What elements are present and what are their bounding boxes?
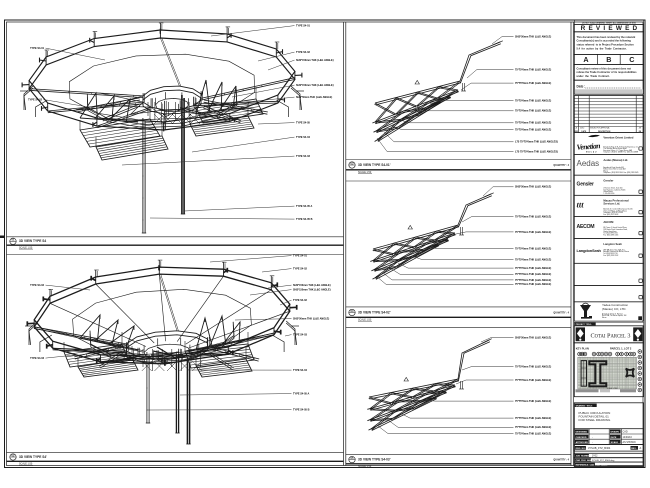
svg-text:Macau: Macau xyxy=(603,170,608,172)
svg-text:TYPE S4-05 B: TYPE S4-05 B xyxy=(293,409,310,412)
svg-text:75*75*6mm THK (L&G ANGLE): 75*75*6mm THK (L&G ANGLE) xyxy=(515,247,551,250)
svg-text:75*75*6mm THK (L&G ANGLE): 75*75*6mm THK (L&G ANGLE) xyxy=(515,129,551,132)
svg-text:TYPE S4-03: TYPE S4-03 xyxy=(30,357,45,360)
svg-text:This document has been reviwed: This document has been reviwed by the re… xyxy=(577,35,636,39)
svg-text:75*75*6mm THK (L&G ANGLE): 75*75*6mm THK (L&G ANGLE) xyxy=(515,68,551,71)
svg-text:Avenida da Praia Grande 665: Avenida da Praia Grande 665 xyxy=(603,166,623,169)
svg-text:75*75*6mm THK (L&G ANGLE): 75*75*6mm THK (L&G ANGLE) xyxy=(515,99,551,102)
svg-text:Tel: (853) 2833 1710: Tel: (853) 2833 1710 xyxy=(603,253,617,255)
svg-text:3D VIEW TYPE S4': 3D VIEW TYPE S4' xyxy=(19,455,47,459)
svg-text:REVIEWED: REVIEWED xyxy=(581,25,641,32)
svg-text:DATE: DATE xyxy=(611,436,617,439)
svg-text:Consultant review of this docu: Consultant review of this document does … xyxy=(577,66,632,70)
svg-text:TYPE S4-04: TYPE S4-04 xyxy=(293,369,308,372)
svg-text:JOB NUMBER:: JOB NUMBER: xyxy=(576,456,592,458)
svg-text:QUANTITY : 4: QUANTITY : 4 xyxy=(553,164,569,167)
svg-text:Aedas (Macau) Ltd.: Aedas (Macau) Ltd. xyxy=(603,158,628,162)
svg-text:38/F AIA Tower, Nos 251A-301: 38/F AIA Tower, Nos 251A-301 xyxy=(603,248,624,251)
svg-text:75*75*6mm THK (L&G ANGLE): 75*75*6mm THK (L&G ANGLE) xyxy=(515,122,551,125)
svg-text:M A C A U: M A C A U xyxy=(586,151,597,154)
svg-text:QUANTITY : 4: QUANTITY : 4 xyxy=(553,311,569,314)
svg-text:TYPE S4-01: TYPE S4-01 xyxy=(293,255,308,258)
svg-text:Fax: (853) 2875 3033: Fax: (853) 2875 3033 xyxy=(603,214,618,216)
svg-text:DRG NO:: DRG NO: xyxy=(576,448,586,450)
svg-text:FOR STEEL DRAWING: FOR STEEL DRAWING xyxy=(579,418,611,422)
svg-text:SHS*50mm THK (L&G ANGLE): SHS*50mm THK (L&G ANGLE) xyxy=(293,318,329,321)
svg-text:TYPE S4-03: TYPE S4-03 xyxy=(293,334,308,337)
svg-text:TYPE S4-05 B: TYPE S4-05 B xyxy=(296,218,313,221)
svg-text:Alameda Dr. Carlos D'Assumpcao: Alameda Dr. Carlos D'Assumpcao, No.255 xyxy=(603,208,632,211)
svg-text:SHS*50mm THK (L&G ANGLE): SHS*50mm THK (L&G ANGLE) xyxy=(515,337,551,340)
svg-text:SHS*150mm THK (L&G ANGLE): SHS*150mm THK (L&G ANGLE) xyxy=(293,284,331,287)
svg-text:Venetian: Venetian xyxy=(576,141,600,152)
svg-text:3YSUB_FTZ_8N04: 3YSUB_FTZ_8N04 xyxy=(588,446,611,450)
svg-text:2 Harrison Street, Suite 400: 2 Harrison Street, Suite 400 xyxy=(603,187,622,190)
svg-text:L75 75*75*6mm THK (L&G ANGLES): L75 75*75*6mm THK (L&G ANGLES) xyxy=(515,150,558,153)
svg-text:3D VIEW TYPE S4-02': 3D VIEW TYPE S4-02' xyxy=(358,310,391,314)
svg-text:CAD: CAD xyxy=(623,431,628,434)
svg-text:75*75*6mm THK (L&G ANGLE): 75*75*6mm THK (L&G ANGLE) xyxy=(515,365,551,368)
svg-text:Telephone: (853) 2833 1840 Fa: Telephone: (853) 2833 1840 Fax: (853) 28… xyxy=(603,172,638,174)
svg-text:75*75*6mm THK (L&G ANGLE): 75*75*6mm THK (L&G ANGLE) xyxy=(515,267,551,270)
svg-text:TYPE S4-02: TYPE S4-02 xyxy=(30,284,45,287)
svg-text:TYPE S4-05: TYPE S4-05 xyxy=(296,122,311,125)
svg-text:75*75*6mm THK (L&G ANGLE): 75*75*6mm THK (L&G ANGLE) xyxy=(515,259,551,262)
svg-text:A: A xyxy=(583,55,588,64)
svg-text:A: A xyxy=(576,126,578,129)
svg-text:Consultants(s) and is accorded: Consultants(s) and is accorded the follo… xyxy=(577,39,632,43)
svg-text:Macau: Macau xyxy=(602,317,607,319)
svg-text:AS SHOWN: AS SHOWN xyxy=(623,441,636,444)
svg-text:Telephone: (853) 81 118888 Fa: Telephone: (853) 81 118888 Fax: (853) 81… xyxy=(603,152,638,154)
svg-text:75*75*6mm THK (L&G ANGLE): 75*75*6mm THK (L&G ANGLE) xyxy=(515,417,551,420)
svg-text:DO NOT SCALE DRAWING. VERIFY A: DO NOT SCALE DRAWING. VERIFY ALL DIMENSI… xyxy=(582,21,636,24)
svg-text:relieve the Trade Contractor o: relieve the Trade Contractor of its resp… xyxy=(577,70,638,74)
svg-text:TYPE S4-01: TYPE S4-01 xyxy=(296,25,311,28)
svg-text:TYPE S4-05 A: TYPE S4-05 A xyxy=(293,393,309,396)
svg-text:05/10: 05/10 xyxy=(580,127,584,129)
svg-text:Date :: Date : xyxy=(577,85,586,89)
svg-text:TYPE S4-02: TYPE S4-02 xyxy=(293,268,308,271)
svg-text:REV:: REV: xyxy=(631,448,636,450)
svg-text:SHS*150mm THK (L&G ANGLE): SHS*150mm THK (L&G ANGLE) xyxy=(293,289,331,292)
svg-text:Venetian Orient Limited: Venetian Orient Limited xyxy=(603,135,633,139)
svg-text:3D VIEW TYPE S4-01': 3D VIEW TYPE S4-01' xyxy=(358,163,391,167)
svg-text:-: - xyxy=(592,436,593,439)
svg-text:3YSUB_FTZ_8N04.dwg: 3YSUB_FTZ_8N04.dwg xyxy=(592,460,615,462)
svg-text:Fax: (853) 2833 1532: Fax: (853) 2833 1532 xyxy=(603,255,618,257)
svg-text:75*75*6mm THK (L&G ANGLE): 75*75*6mm THK (L&G ANGLE) xyxy=(515,231,551,234)
svg-text:REFERENCE CAD FILE NAME:: REFERENCE CAD FILE NAME: xyxy=(576,463,608,466)
svg-text:B: B xyxy=(606,55,611,64)
svg-text:under the Trade Contract.: under the Trade Contract. xyxy=(577,74,610,78)
svg-text:Tel: (852) 2893 1551: Tel: (852) 2893 1551 xyxy=(603,233,617,235)
svg-text:75*75*6mm THK (L&G ANGLE): 75*75*6mm THK (L&G ANGLE) xyxy=(515,400,551,403)
svg-text:CHECKED: CHECKED xyxy=(576,437,587,439)
svg-text:75*75*6mm THK (L&G ANGLE): 75*75*6mm THK (L&G ANGLE) xyxy=(515,273,551,276)
svg-text:3Y02: 3Y02 xyxy=(592,456,598,458)
svg-text:QUANTITY : 4: QUANTITY : 4 xyxy=(553,458,569,461)
svg-text:APPROVED: APPROVED xyxy=(576,441,589,444)
svg-text:(Macau) CO, LTD.: (Macau) CO, LTD. xyxy=(602,307,626,311)
svg-text:L75 75*75*6mm THK (L&G ANGLES): L75 75*75*6mm THK (L&G ANGLES) xyxy=(515,141,558,144)
svg-text:Fax: (852) 2891 0305: Fax: (852) 2891 0305 xyxy=(603,234,618,236)
svg-text:SCALE: SCALE xyxy=(611,441,619,444)
svg-text:DESIGNED: DESIGNED xyxy=(576,432,588,434)
svg-text:TYPE S4-02: TYPE S4-02 xyxy=(28,99,43,102)
svg-text:3D VIEW TYPE S4: 3D VIEW TYPE S4 xyxy=(19,239,46,243)
svg-text:ISSUED FOR APPROVAL: ISSUED FOR APPROVAL xyxy=(590,126,610,129)
svg-text:5.4 for action by the Tra: 5.4 for action by the Trade Contractor. xyxy=(577,47,627,51)
svg-text:Avenida do Infante D. Henrique: Avenida do Infante D. Henrique xyxy=(602,313,623,316)
svg-text:3D VIEW TYPE S4-03': 3D VIEW TYPE S4-03' xyxy=(358,457,391,461)
svg-text:75*75*6mm THK (L&G ANGLE): 75*75*6mm THK (L&G ANGLE) xyxy=(515,279,551,282)
svg-text:75*75*6mm THK (L&G ANGLE): 75*75*6mm THK (L&G ANGLE) xyxy=(515,215,551,218)
svg-text:TYPE S4-03: TYPE S4-03 xyxy=(296,155,311,158)
svg-text:DRAWING TITLE:: DRAWING TITLE: xyxy=(576,404,593,407)
svg-text:SHS*150mm THK (L&G ANGLE): SHS*150mm THK (L&G ANGLE) xyxy=(296,59,334,62)
svg-text:SHS*50mm THK (L&G ANGLE): SHS*50mm THK (L&G ANGLE) xyxy=(515,186,551,189)
svg-text:COTAI PARCEL 3: COTAI PARCEL 3 xyxy=(591,332,631,339)
svg-text:AECOM: AECOM xyxy=(603,220,614,224)
svg-text:JW: JW xyxy=(639,127,642,129)
svg-text:14/04/10: 14/04/10 xyxy=(623,436,633,439)
svg-text:T 415.433.3700: T 415.433.3700 xyxy=(603,193,614,195)
svg-text:TYPE S4-02: TYPE S4-02 xyxy=(296,51,311,54)
svg-text:-: - xyxy=(592,441,593,444)
svg-text:Gensler: Gensler xyxy=(603,179,613,183)
svg-text:Langdon Seah: Langdon Seah xyxy=(603,242,622,246)
svg-text:TYPE S4-02: TYPE S4-02 xyxy=(293,299,308,302)
svg-text:A: A xyxy=(640,446,642,450)
svg-text:AECOM: AECOM xyxy=(577,224,595,230)
svg-text:75*75*6mm THK (L&G ANGLE): 75*75*6mm THK (L&G ANGLE) xyxy=(515,379,551,382)
svg-text:Estrada da Baia de N. Senhora: Estrada da Baia de N. Senhora da Esperan… xyxy=(603,145,637,148)
svg-text:8/F, Tower 2, Grand Central Pl: 8/F, Tower 2, Grand Central Plaza, xyxy=(603,226,627,229)
svg-text:C: C xyxy=(629,55,634,64)
svg-text:LangdonSeah: LangdonSeah xyxy=(577,248,602,253)
svg-text:KEY PLAN: KEY PLAN xyxy=(576,347,589,351)
svg-text:SHS*50mm THK (L&G ANGLE): SHS*50mm THK (L&G ANGLE) xyxy=(515,36,551,39)
svg-text:SHS*150mm THK (L&G ANGLE): SHS*150mm THK (L&G ANGLE) xyxy=(296,84,334,87)
svg-text:status referred to in Project: status referred to in Project Procedure … xyxy=(577,43,635,47)
svg-text:TYPE S4-05 A: TYPE S4-05 A xyxy=(296,205,312,208)
svg-text:Services Ltd.: Services Ltd. xyxy=(603,202,620,206)
svg-text:TYPE S4-01: TYPE S4-01 xyxy=(30,47,45,50)
svg-text:Aedas: Aedas xyxy=(577,159,600,168)
svg-text:75*75*6mm THK (L&G ANGLE): 75*75*6mm THK (L&G ANGLE) xyxy=(515,283,551,286)
svg-text:75*75*6mm THK (L&G ANGLE): 75*75*6mm THK (L&G ANGLE) xyxy=(515,426,551,429)
svg-text:PARCEL 1, LOT 2: PARCEL 1, LOT 2 xyxy=(610,347,632,351)
svg-text:ttt: ttt xyxy=(577,200,585,210)
svg-text:75*75*6mm THK (L&G ANGLE): 75*75*6mm THK (L&G ANGLE) xyxy=(515,433,551,436)
svg-text:SHS*50mm THK (L&G ANGLE): SHS*50mm THK (L&G ANGLE) xyxy=(296,96,332,99)
svg-text:75*75*6mm THK (L&G ANGLE): 75*75*6mm THK (L&G ANGLE) xyxy=(515,82,551,85)
svg-text:Telephone: (853) 2875 3088: Telephone: (853) 2875 3088 xyxy=(603,212,622,214)
svg-text:TYPE S4-04: TYPE S4-04 xyxy=(296,136,311,139)
svg-text:Gensler: Gensler xyxy=(577,182,594,188)
svg-text:75*75*6mm THK (L&G ANGLE): 75*75*6mm THK (L&G ANGLE) xyxy=(515,110,551,113)
svg-text:DRAWN: DRAWN xyxy=(611,431,620,434)
